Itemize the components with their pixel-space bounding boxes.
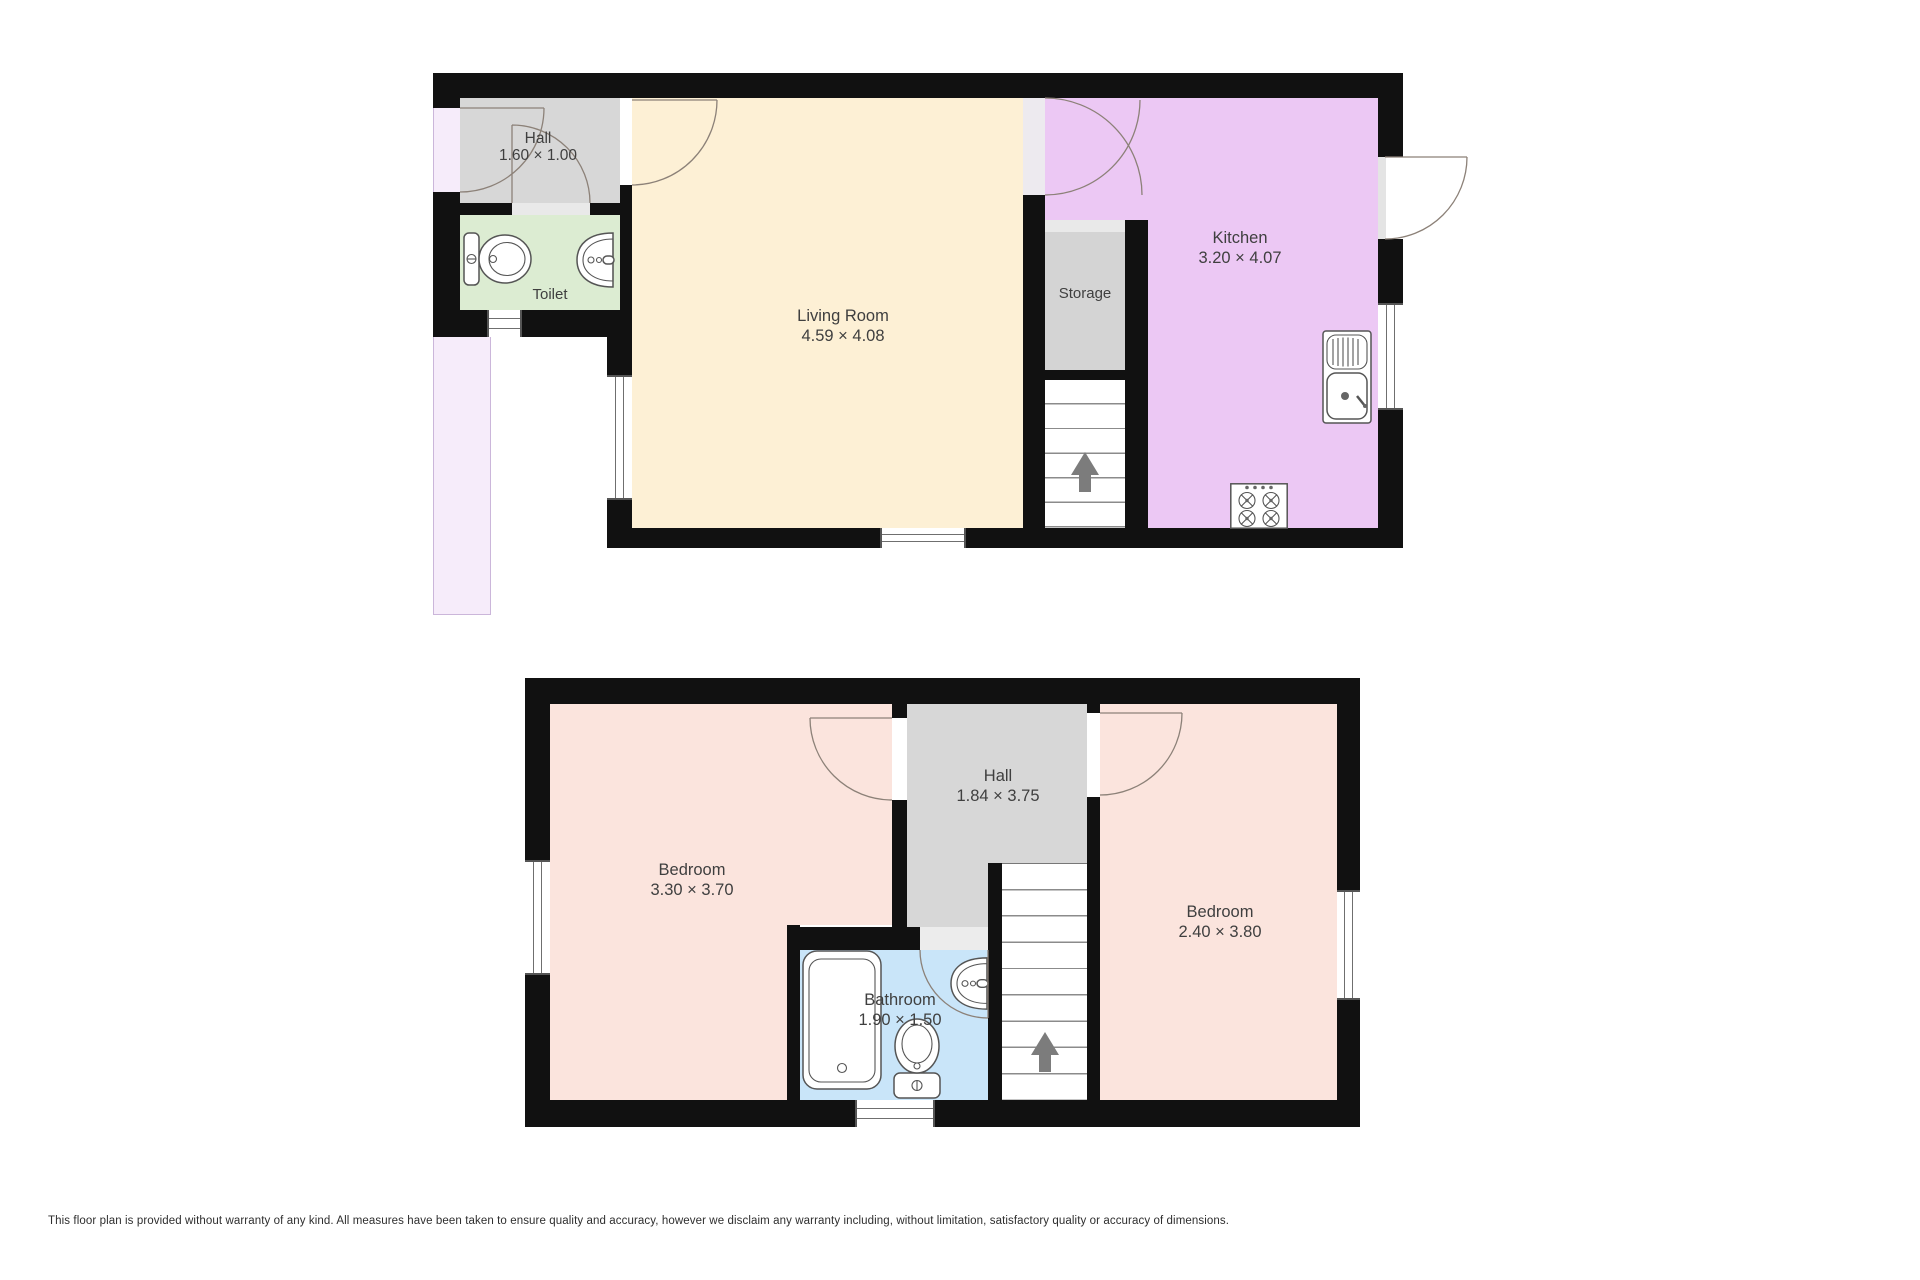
wall	[988, 863, 1002, 1100]
storage-label: Storage	[1045, 285, 1125, 303]
wall	[1337, 678, 1360, 890]
wall	[607, 528, 880, 548]
storage-door-threshold	[1045, 220, 1125, 232]
disclaimer-text: This floor plan is provided without warr…	[48, 1215, 1229, 1227]
wall	[892, 678, 907, 718]
staircase	[1002, 863, 1087, 1100]
room-name: Hall	[458, 130, 618, 147]
wall	[1087, 797, 1100, 1100]
room-dims: 3.20 × 4.07	[1140, 248, 1340, 268]
room-name: Bedroom	[1120, 902, 1320, 922]
window	[1337, 890, 1360, 1000]
wall	[1378, 73, 1403, 157]
wall	[1378, 410, 1403, 528]
kitchen-door-threshold	[1023, 98, 1045, 195]
staircase	[1045, 380, 1125, 528]
bathroom-label: Bathroom 1.90 × 1.50	[800, 990, 1000, 1030]
window	[607, 375, 632, 500]
wall	[525, 678, 550, 860]
room-dims: 1.60 × 1.00	[458, 147, 618, 164]
room-dims: 1.84 × 3.75	[898, 786, 1098, 806]
window	[487, 310, 522, 337]
room-dims: 4.59 × 4.08	[743, 326, 943, 346]
wall	[892, 800, 907, 927]
stairs-up-arrow-icon	[1071, 452, 1099, 492]
room-dims: 1.90 × 1.50	[800, 1010, 1000, 1030]
wall	[525, 678, 1360, 704]
hall-label: Hall 1.84 × 3.75	[898, 766, 1098, 806]
wall	[1378, 239, 1403, 303]
wall	[433, 73, 460, 108]
window	[1378, 303, 1403, 410]
kitchen-label: Kitchen 3.20 × 4.07	[1140, 228, 1340, 268]
stove-icon	[1230, 483, 1288, 529]
wall	[787, 925, 800, 1100]
wall	[787, 927, 920, 950]
room-dims: 3.30 × 3.70	[592, 880, 792, 900]
bedroom-left-label: Bedroom 3.30 × 3.70	[592, 860, 792, 900]
washbasin-icon	[575, 231, 615, 289]
living-room-label: Living Room 4.59 × 4.08	[743, 306, 943, 346]
wall	[460, 203, 512, 215]
wall	[607, 310, 632, 375]
room-name: Bathroom	[800, 990, 1000, 1010]
kitchen-counter-right	[433, 334, 491, 615]
entrance-door-threshold	[1378, 157, 1386, 239]
toilet-door-threshold	[512, 203, 590, 215]
wall	[433, 73, 1403, 98]
wall	[1023, 370, 1148, 380]
wall	[1023, 195, 1045, 528]
hall-label: Hall 1.60 × 1.00	[458, 130, 618, 164]
window	[855, 1100, 935, 1127]
bathroom-door-threshold	[920, 927, 988, 950]
window	[880, 528, 966, 548]
bedroom-right-label: Bedroom 2.40 × 3.80	[1120, 902, 1320, 942]
wall	[590, 203, 632, 215]
wall	[966, 528, 1403, 548]
wall	[433, 310, 487, 337]
wall	[607, 500, 632, 528]
room-name: Hall	[898, 766, 1098, 786]
wc-toilet-icon	[463, 230, 535, 288]
window	[525, 860, 550, 975]
room-name: Living Room	[743, 306, 943, 326]
stairs-up-arrow-icon	[1031, 1032, 1059, 1072]
wall	[525, 1100, 855, 1127]
room-name: Kitchen	[1140, 228, 1340, 248]
room-name: Bedroom	[592, 860, 792, 880]
wall	[1087, 678, 1100, 713]
wall	[935, 1100, 1360, 1127]
bedroom-left-area	[550, 925, 787, 1100]
room-dims: 2.40 × 3.80	[1120, 922, 1320, 942]
ground-floor-plan: Hall 1.60 × 1.00 Toilet Living Room 4.59…	[433, 73, 1403, 548]
kitchen-sink-icon	[1322, 330, 1372, 424]
wall	[1125, 380, 1148, 528]
toilet-label: Toilet	[480, 286, 620, 304]
first-floor-plan: Bedroom 3.30 × 3.70 Hall 1.84 × 3.75 Bat…	[525, 678, 1360, 1127]
